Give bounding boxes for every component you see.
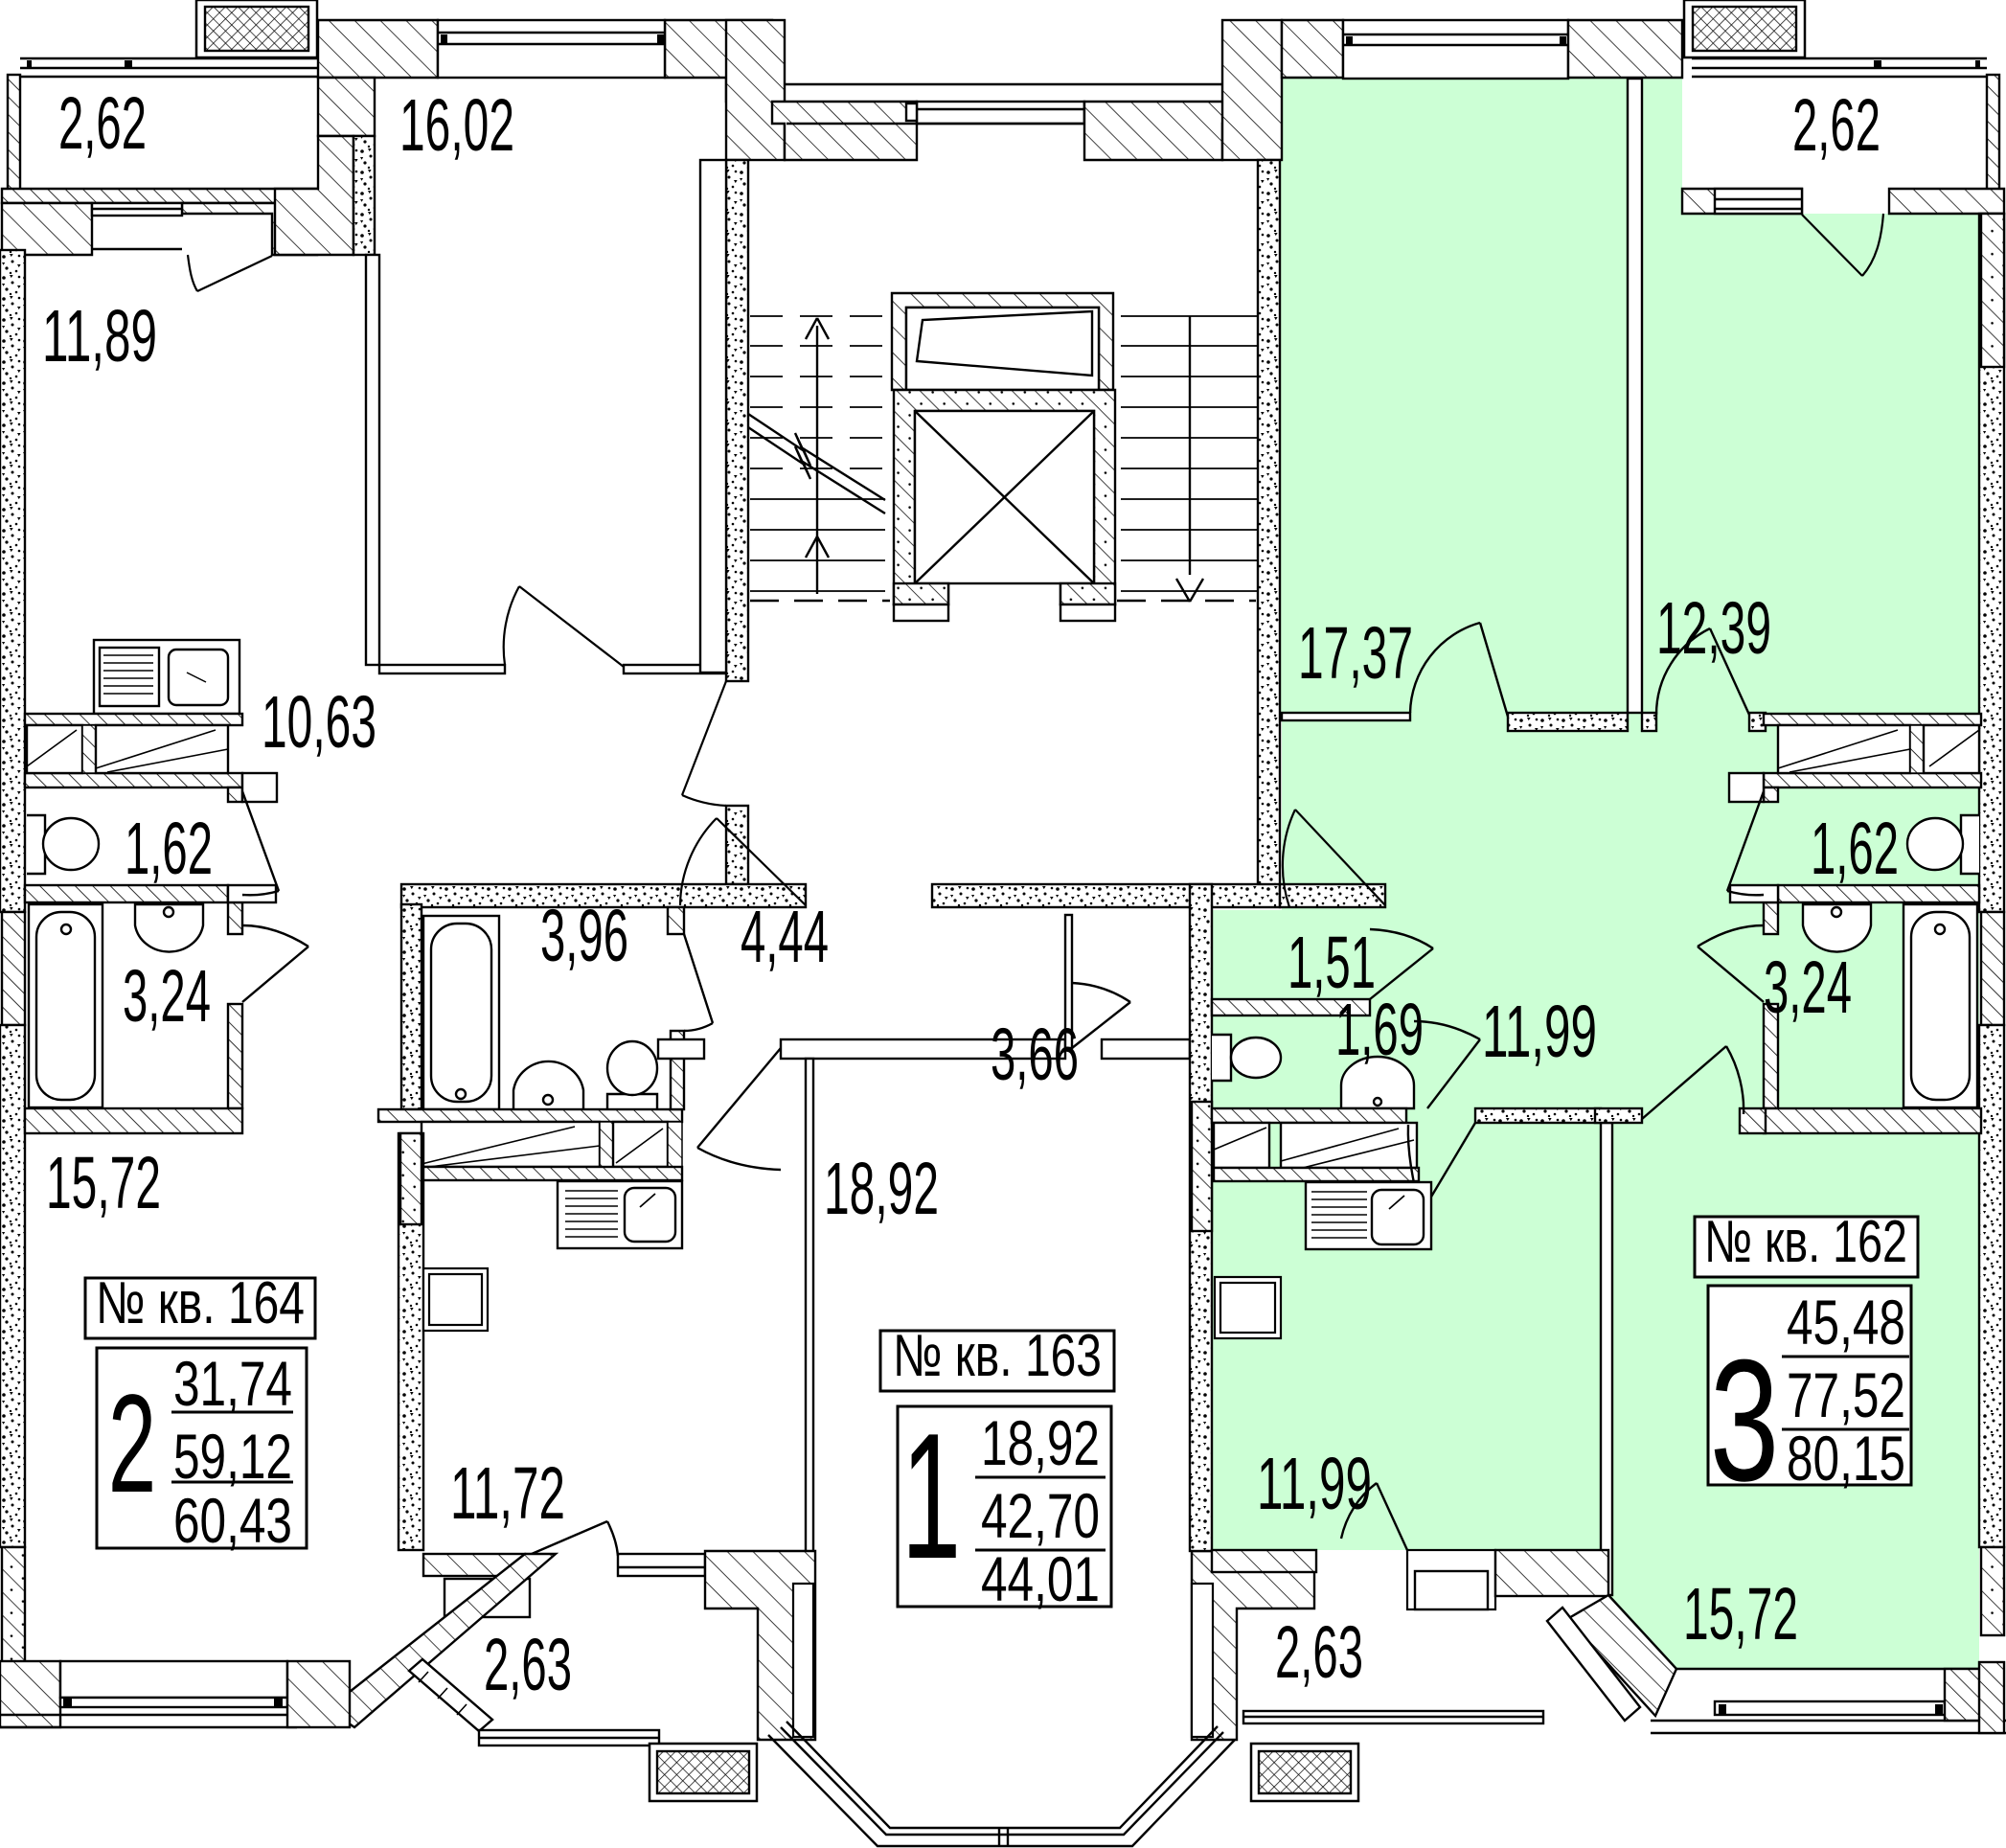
- svg-text:11,99: 11,99: [1482, 991, 1597, 1073]
- svg-text:77,52: 77,52: [1787, 1359, 1905, 1430]
- svg-text:11,72: 11,72: [450, 1452, 565, 1535]
- svg-text:3,24: 3,24: [123, 955, 211, 1038]
- svg-text:3,66: 3,66: [991, 1014, 1079, 1096]
- svg-text:4,44: 4,44: [741, 896, 829, 978]
- svg-text:80,15: 80,15: [1787, 1423, 1905, 1494]
- svg-text:2,63: 2,63: [1275, 1611, 1363, 1694]
- svg-text:3,96: 3,96: [540, 895, 628, 977]
- svg-text:3,24: 3,24: [1764, 947, 1852, 1029]
- svg-text:15,72: 15,72: [46, 1142, 161, 1224]
- svg-text:45,48: 45,48: [1787, 1287, 1905, 1357]
- svg-text:№ кв. 164: № кв. 164: [96, 1270, 305, 1336]
- svg-text:№ кв. 163: № кв. 163: [893, 1323, 1102, 1389]
- svg-text:15,72: 15,72: [1683, 1573, 1798, 1655]
- svg-text:18,92: 18,92: [981, 1407, 1100, 1478]
- svg-text:1,62: 1,62: [125, 808, 213, 890]
- svg-text:44,01: 44,01: [981, 1543, 1100, 1614]
- svg-text:2,62: 2,62: [1792, 84, 1881, 167]
- svg-text:16,02: 16,02: [399, 84, 514, 167]
- svg-text:10,63: 10,63: [262, 681, 376, 764]
- svg-text:1,62: 1,62: [1811, 808, 1899, 890]
- svg-text:2: 2: [108, 1365, 156, 1521]
- svg-text:31,74: 31,74: [173, 1348, 292, 1419]
- svg-text:60,43: 60,43: [173, 1485, 292, 1556]
- svg-text:42,70: 42,70: [981, 1480, 1100, 1551]
- svg-text:1: 1: [901, 1395, 961, 1596]
- svg-text:3: 3: [1710, 1324, 1779, 1517]
- svg-text:1,69: 1,69: [1335, 989, 1424, 1071]
- svg-text:2,62: 2,62: [58, 82, 147, 165]
- svg-text:2,63: 2,63: [484, 1624, 572, 1706]
- svg-text:№ кв. 162: № кв. 162: [1704, 1209, 1907, 1275]
- svg-text:12,39: 12,39: [1656, 587, 1771, 670]
- svg-text:18,92: 18,92: [824, 1148, 939, 1230]
- svg-text:17,37: 17,37: [1298, 612, 1413, 695]
- svg-text:11,89: 11,89: [42, 295, 157, 377]
- svg-text:11,99: 11,99: [1257, 1443, 1372, 1525]
